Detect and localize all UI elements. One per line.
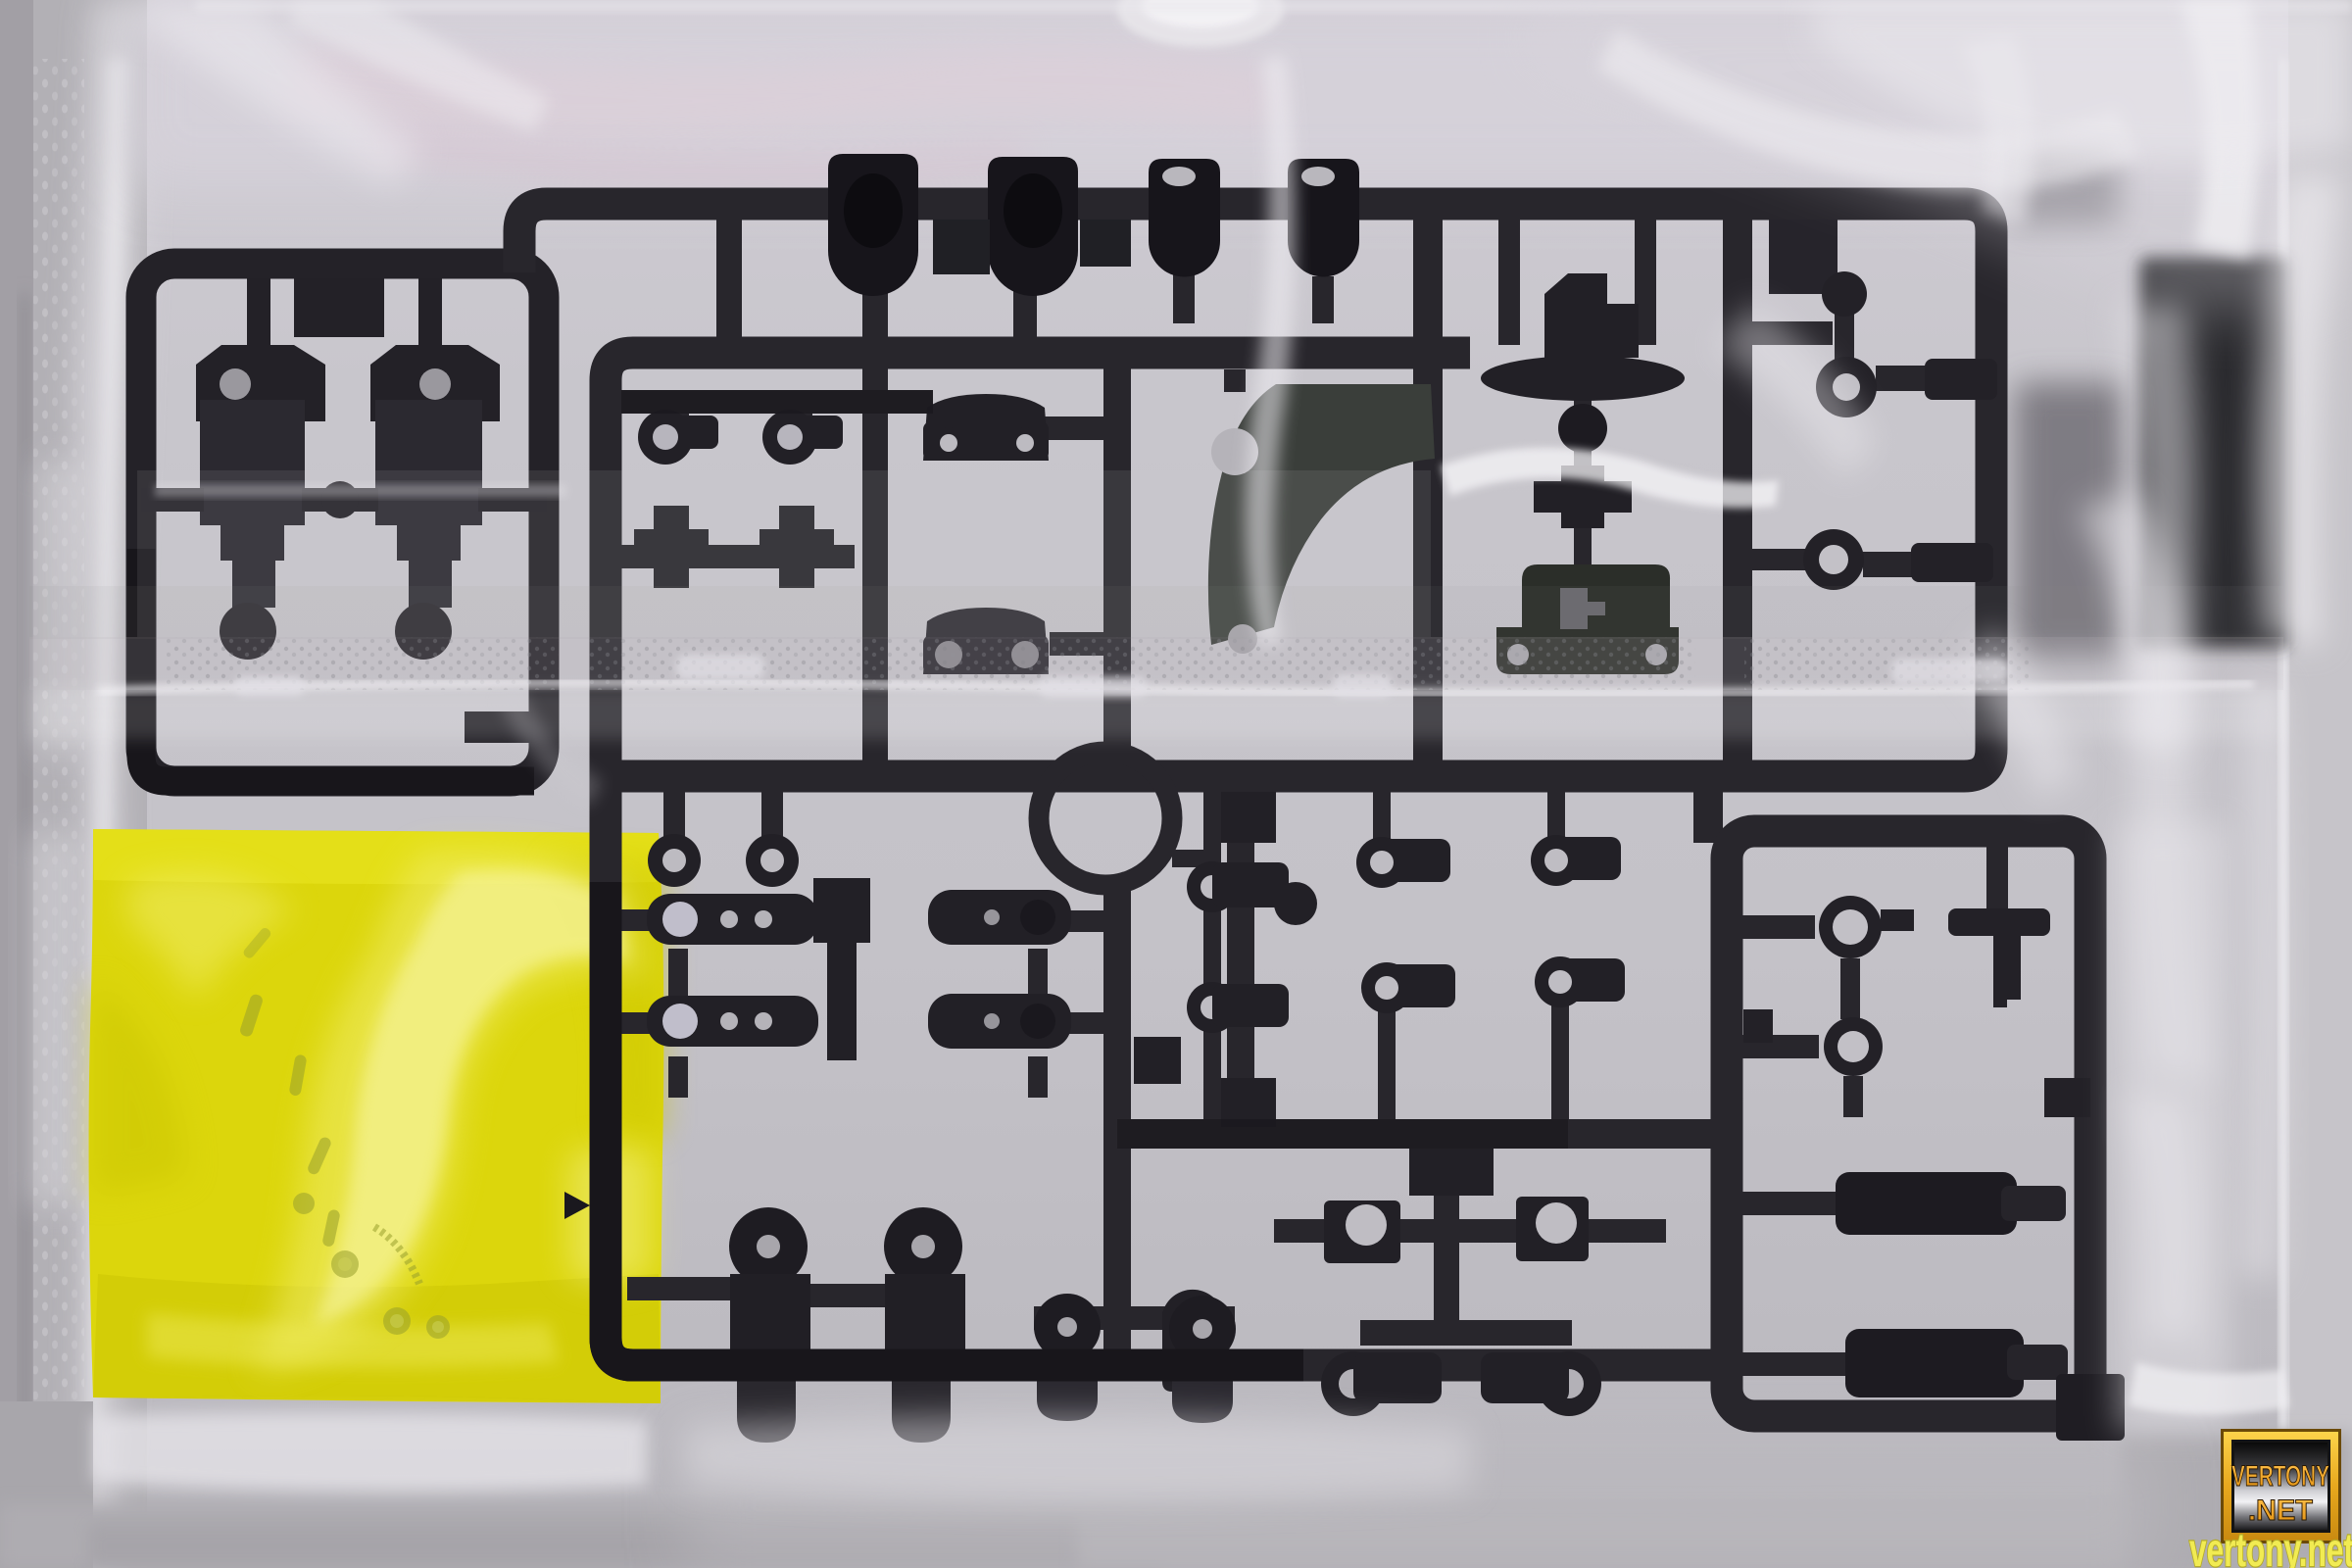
svg-text:VERTONY: VERTONY <box>2231 1460 2329 1493</box>
svg-text:.NET: .NET <box>2248 1494 2313 1527</box>
svg-text:vertony.net: vertony.net <box>2189 1525 2352 1568</box>
